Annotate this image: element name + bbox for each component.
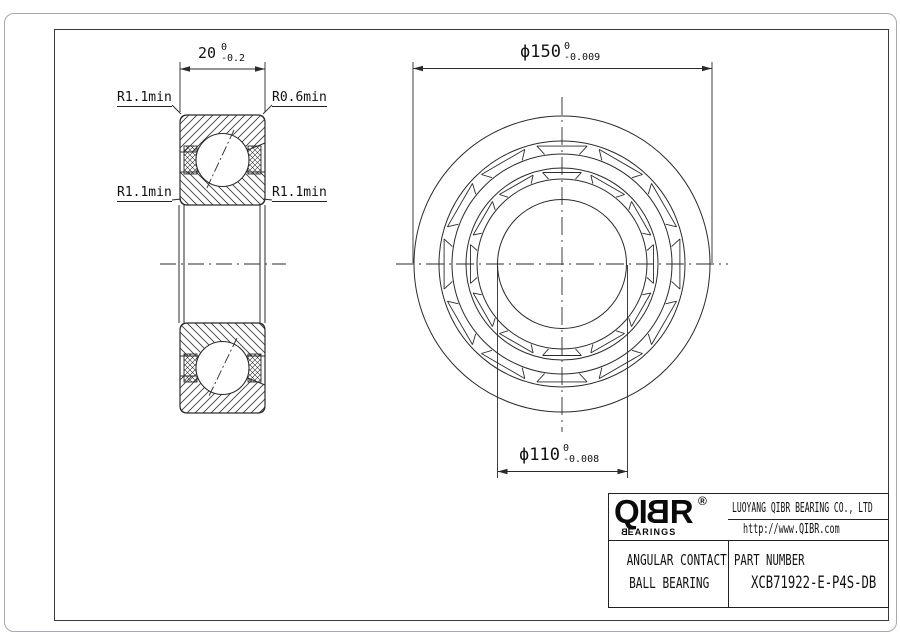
company-name: LUOYANG QIBR BEARING CO., LTD [732, 501, 900, 516]
cage-left-bottom [184, 354, 197, 382]
bore-dim-value: ϕ110 [519, 445, 560, 465]
title-block-row-divider [609, 540, 888, 541]
qibr-logo-sub: BEARINGS [620, 527, 676, 537]
title-block: QIBR ® BEARINGS LUOYANG QIBR BEARING CO.… [608, 493, 889, 608]
company-url: http://www.QIBR.com [743, 522, 892, 537]
width-dim-tol-lower: -0.2 [221, 53, 245, 64]
radius-label-top-right: R0.6min [272, 90, 327, 107]
product-type-line1: ANGULAR CONTACT [609, 551, 729, 569]
company-url-divider [728, 519, 888, 520]
radius-label-mid-right: R1.1min [272, 185, 327, 202]
width-dim-tol-upper: 0 [221, 42, 227, 53]
width-dim-value: 20 [198, 44, 216, 62]
bore-dim-tol-lower: -0.008 [563, 454, 599, 465]
registered-mark: ® [698, 494, 707, 508]
bore-dim-tol-upper: 0 [563, 443, 569, 454]
product-type-line2: BALL BEARING [609, 574, 729, 592]
od-dim-tol-upper: 0 [564, 41, 570, 52]
section-view [160, 115, 286, 413]
part-number-label: PART NUMBER [734, 551, 833, 569]
part-number-value: XCB71922-E-P4S-DB [751, 573, 900, 593]
front-view-centerlines [396, 97, 728, 432]
cage-left-top [184, 146, 197, 174]
radius-label-mid-left: R1.1min [117, 185, 172, 202]
ball-top [196, 134, 249, 187]
qibr-logo: QIBR [614, 497, 693, 527]
cage-right-bottom [248, 354, 261, 382]
cage-right-top [248, 146, 261, 174]
drawing-page: 20 0 -0.2 R1.1min R0.6min R1.1min R1.1mi… [0, 0, 900, 636]
od-dim-value: ϕ150 [520, 42, 561, 62]
od-dim-tol-lower: -0.009 [564, 52, 600, 63]
ball-bottom [196, 342, 249, 395]
radius-label-top-left: R1.1min [117, 90, 172, 107]
